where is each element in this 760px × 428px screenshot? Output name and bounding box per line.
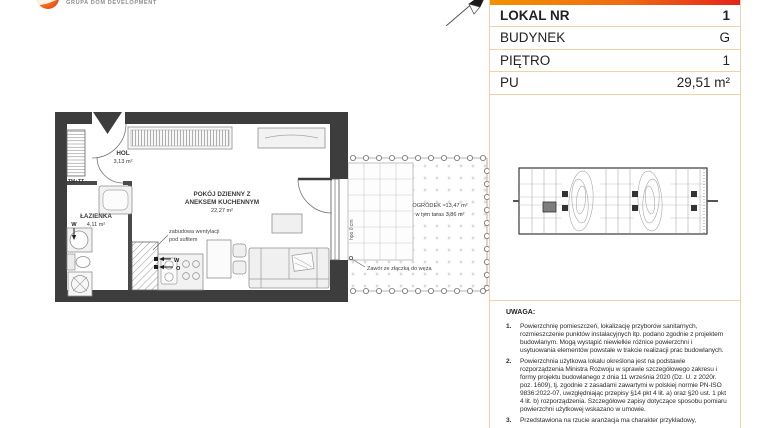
info-row-lokal: LOKAL NR 1 [490,5,740,27]
dining-table [207,240,231,278]
shaft-label: TM+TT [68,179,84,185]
apartment-card-page: GRUPA DOM DEVELOPMENT [0,0,760,428]
note-text: Powierzchnia użytkowa lokalu określona j… [520,358,728,414]
toilet [76,257,90,268]
info-value: G [719,30,730,45]
brand-logo-text: GRUPA DOM DEVELOPMENT [66,0,157,6]
room-label-hol: HOL [116,150,129,157]
water-connection-label: W [174,258,180,264]
north-arrow-icon [438,0,496,26]
building-key-plan [512,163,720,241]
note-text: Przedstawiona na rzucie aranżacja ma cha… [520,417,728,425]
sofa [249,248,329,288]
room-label-living-1: POKÓJ DZIENNY Z [194,189,251,198]
note-item: 1. Powierzchnię pomieszczeń, lokalizację… [506,323,728,355]
info-value: 29,51 m² [677,75,730,90]
room-area-living: 22,27 m² [211,208,233,214]
note-item: 2. Powierzchnia użytkowa lokalu określon… [506,358,728,414]
chair [233,261,246,274]
notes-section: UWAGA: 1. Powierzchnię pomieszczeń, loka… [490,301,740,428]
info-label: BUDYNEK [500,30,565,45]
note-number: 3. [506,417,517,425]
bathroom-fixtures: W [67,186,132,296]
hose-valve-icon [349,256,352,259]
info-value: 1 [722,53,730,68]
terrace [348,163,413,260]
garden-sublabel: w tym taras 3,86 m² [414,212,464,218]
vent-annotation-1: zabudowa wentylacji [169,229,219,235]
heating-connection-label: O [176,266,181,272]
washbasin [70,231,88,249]
floor-plan: OGRÓDEK ≈13,47 m² w tym taras 3,86 m² Za… [35,88,495,323]
vent-annotation-2: pod sufitem [169,237,198,243]
dining-set [207,240,246,278]
key-plan-cell [490,95,740,301]
info-label: PU [500,75,519,90]
note-text: Powierzchnię pomieszczeń, lokalizację pr… [520,323,728,355]
kitchen-annex: W O [154,254,203,290]
brand-logo-icon [37,0,59,9]
note-item: 3. Przedstawiona na rzucie aranżacja ma … [506,417,728,425]
info-label: LOKAL NR [500,8,570,23]
note-number: 2. [506,358,517,414]
garden-label: OGRÓDEK ≈13,47 m² [412,202,467,209]
info-row-budynek: BUDYNEK G [490,27,740,49]
coffee-table [272,214,302,233]
key-plan-highlighted-unit [543,202,556,212]
valve-annotation: Zawór ze złączką do węża [367,266,432,272]
chair [233,244,246,257]
wardrobe [128,127,232,149]
sill-height-label: hpo 0 cm [349,219,355,240]
info-value: 1 [722,8,730,23]
note-number: 1. [506,323,517,355]
room-area-hol: 3,13 m² [114,159,133,165]
info-row-pu: PU 29,51 m² [490,72,740,94]
tm-tt-shaft: TM+TT [67,130,85,185]
room-area-lazienka: 4,11 m² [87,222,106,228]
water-riser-label: W [71,222,77,228]
info-row-pietro: PIĘTRO 1 [490,50,740,72]
sideboard [258,128,325,148]
room-label-living-2: ANEKSEM KUCHENNYM [185,199,259,206]
notes-title: UWAGA: [506,309,728,316]
garden-area: OGRÓDEK ≈13,47 m² w tym taras 3,86 m² Za… [348,155,490,293]
entrance-door-icon [93,112,122,134]
unit-info-panel: LOKAL NR 1 BUDYNEK G PIĘTRO 1 PU 29,51 m… [489,0,741,428]
room-label-lazienka: ŁAZIENKA [80,213,112,220]
info-label: PIĘTRO [500,53,550,68]
